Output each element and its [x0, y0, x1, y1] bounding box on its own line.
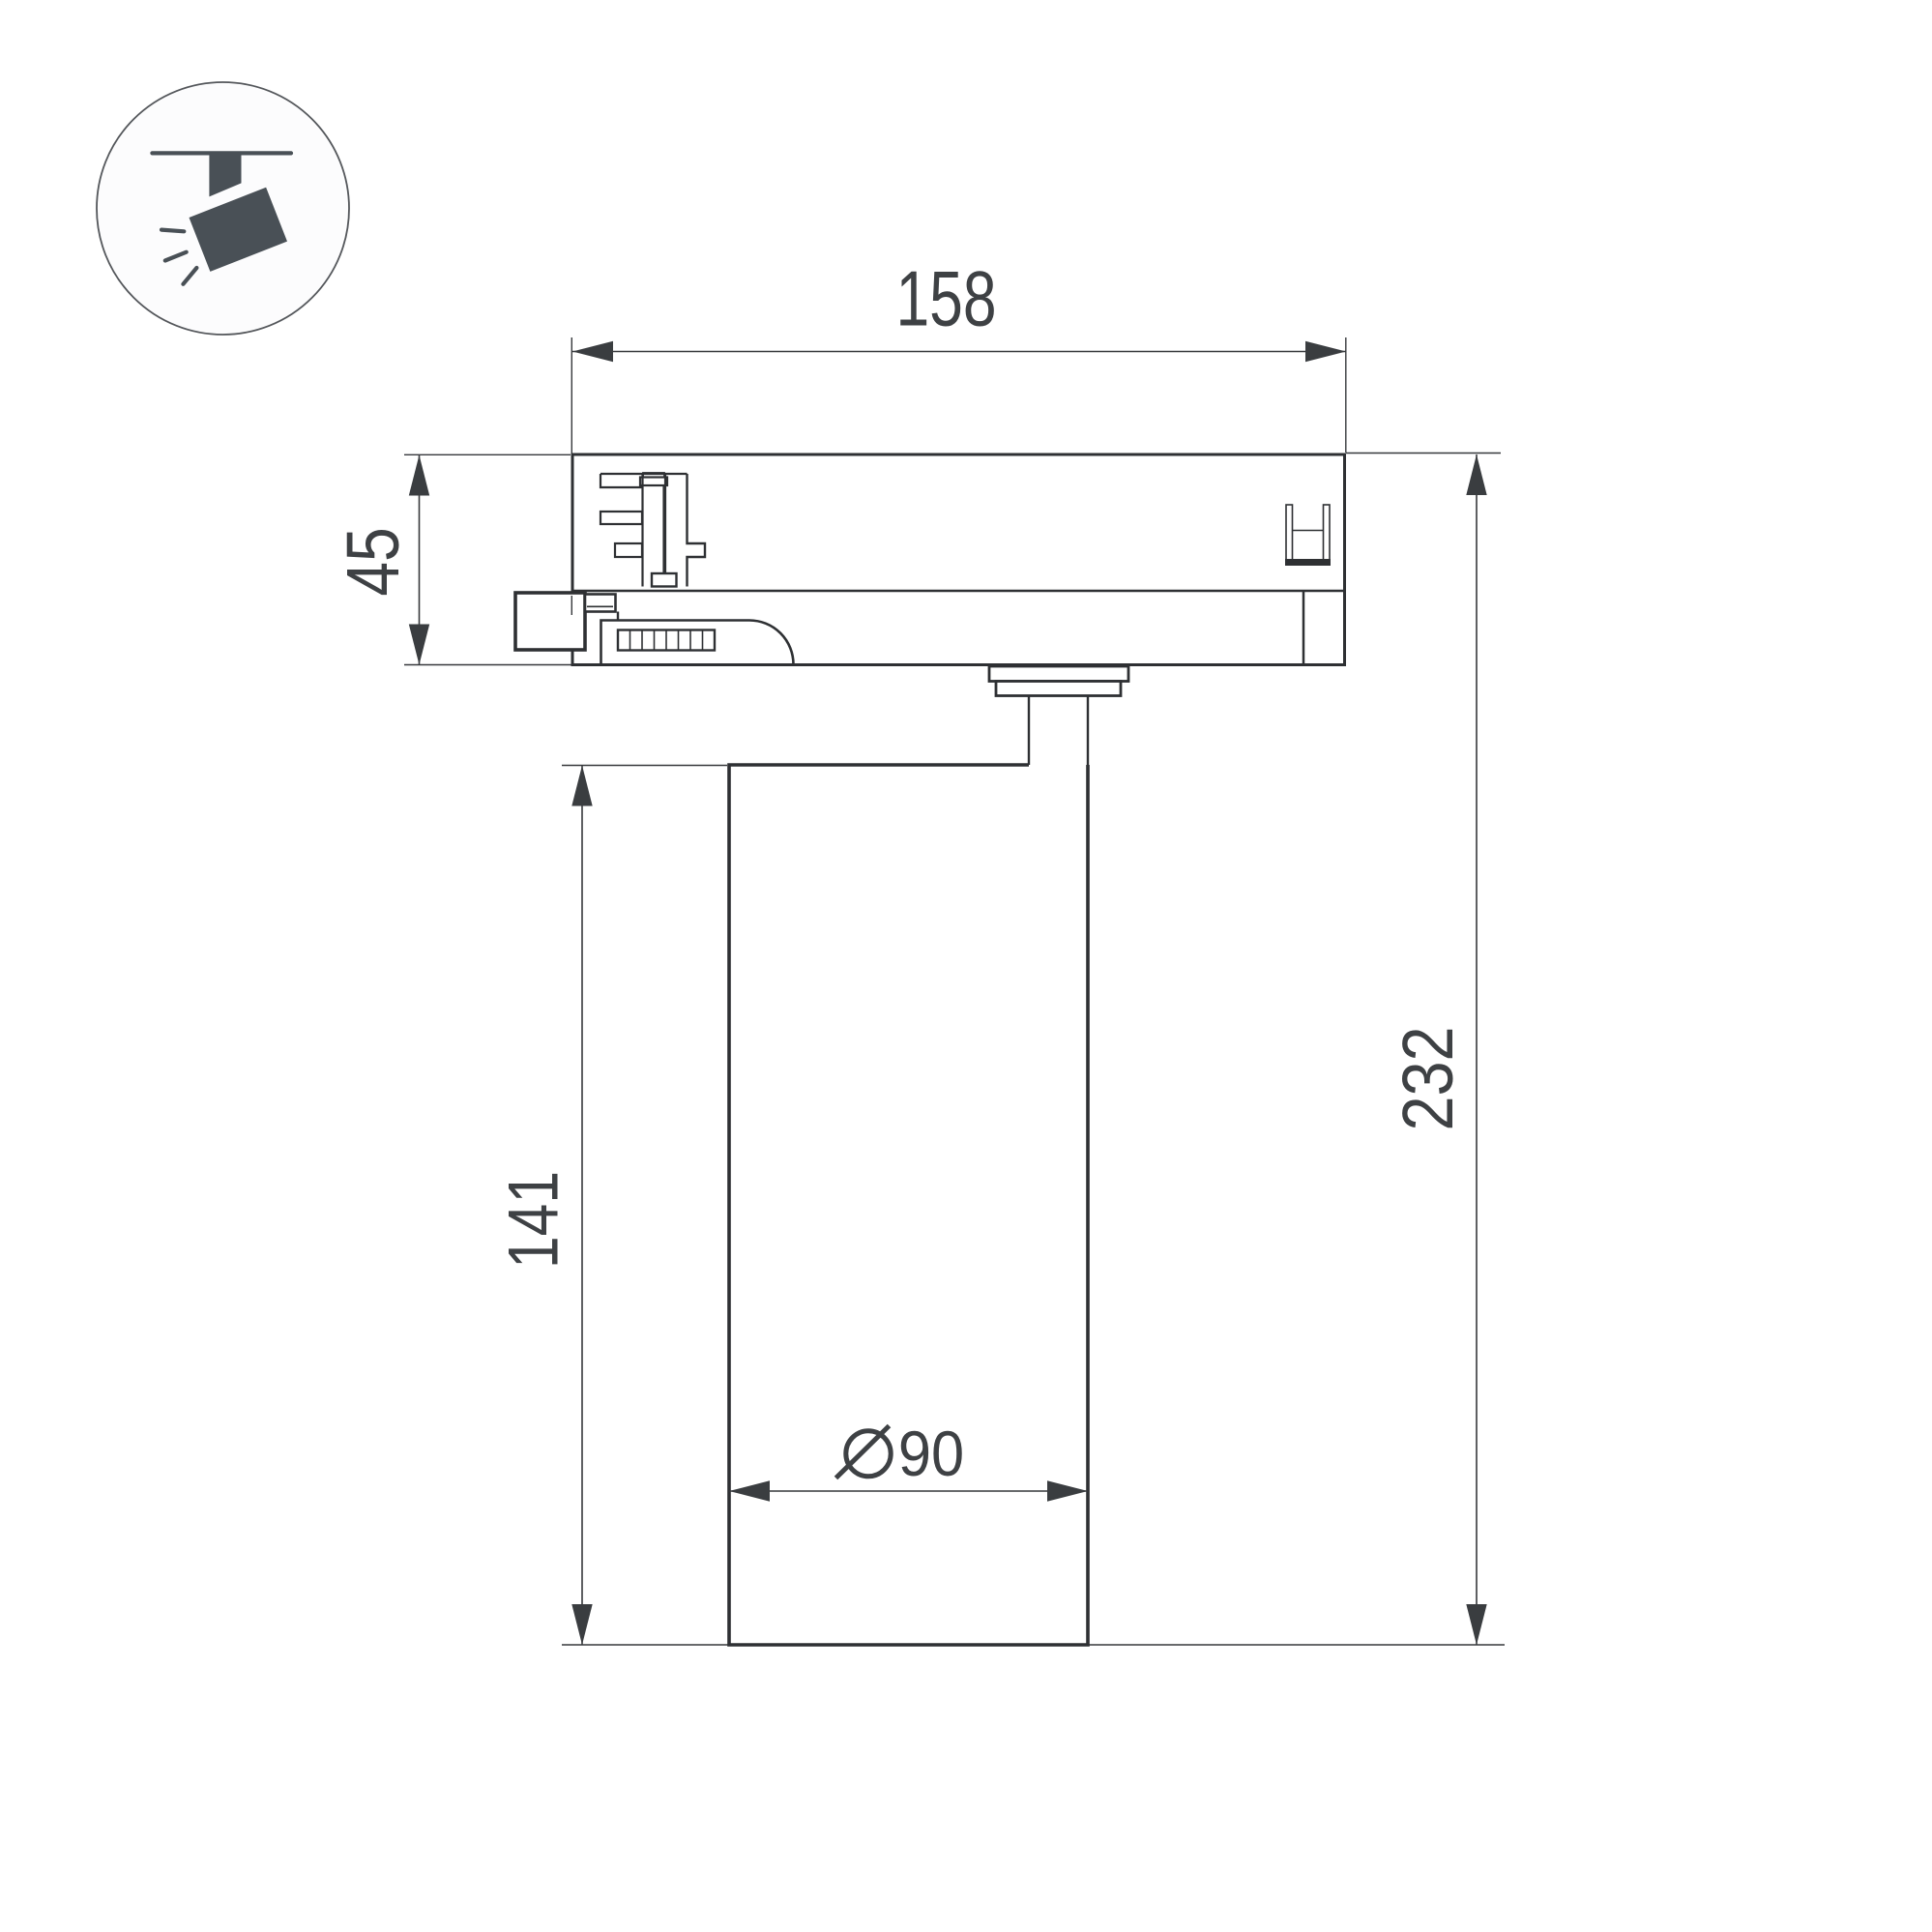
svg-text:158: 158 — [895, 256, 996, 343]
svg-text:90: 90 — [898, 1418, 964, 1490]
svg-text:45: 45 — [333, 527, 416, 596]
svg-text:141: 141 — [494, 1171, 573, 1269]
svg-text:232: 232 — [1388, 1026, 1468, 1130]
